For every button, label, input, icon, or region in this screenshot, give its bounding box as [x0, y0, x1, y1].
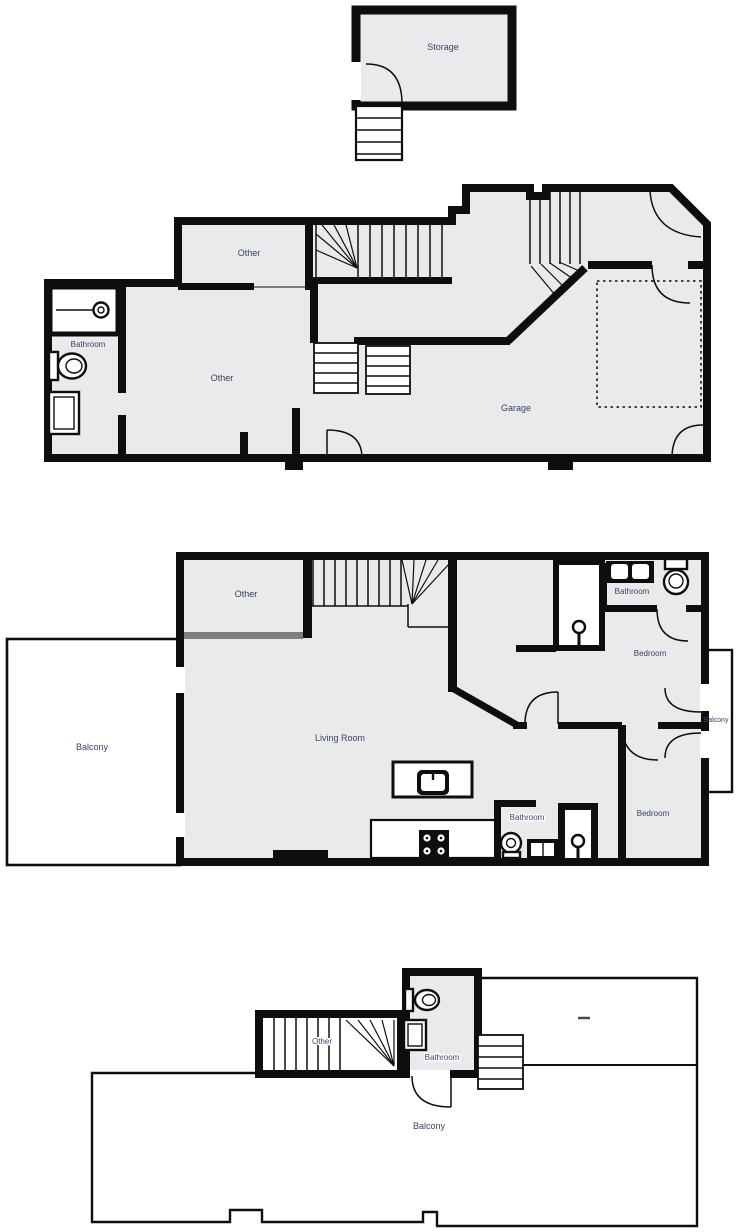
threshold-tab: [548, 454, 573, 470]
floor-plan-drawing: Storage Bathroom Other: [0, 0, 736, 1232]
double-vanity-icon: [606, 561, 654, 583]
hall-wall: [558, 722, 622, 729]
garage-level-outline: [48, 188, 707, 458]
bathroom-wall: [494, 800, 536, 807]
bedroom-top-label: Bedroom: [634, 649, 667, 658]
other-room-wall: [178, 283, 254, 290]
other-room-wall: [303, 556, 312, 638]
vanity-icon: [49, 392, 79, 434]
stair-wall: [448, 556, 457, 692]
terrace-small-stairs: [478, 1035, 523, 1089]
storage-door-opening: [350, 62, 361, 100]
bathroom-top-label: Bathroom: [615, 587, 650, 596]
other-big-label: Other: [211, 373, 234, 383]
bathroom-wall: [494, 800, 501, 862]
balcony-door-opening: [175, 667, 185, 693]
other-label: Other: [235, 589, 258, 599]
vanity-icon: [404, 1020, 426, 1050]
storage-room: [356, 10, 512, 106]
bedroom-bottom-label: Bedroom: [637, 809, 670, 818]
stove-icon: [419, 830, 449, 858]
storage-label: Storage: [427, 42, 459, 52]
storage-stairs: [356, 106, 402, 160]
living-room-label: Living Room: [315, 733, 365, 743]
balcony-left-label: Balcony: [76, 742, 109, 752]
balcony-right-label: Balcony: [704, 717, 729, 724]
balcony-door-opening: [700, 731, 710, 758]
floor-storage: Storage: [350, 10, 512, 160]
toilet-icon: [405, 989, 439, 1011]
terrace-bathroom-label: Bathroom: [425, 1053, 460, 1062]
other-small-label: Other: [238, 248, 261, 258]
floor-plan-page: Storage Bathroom Other: [0, 0, 736, 1232]
balcony-door-opening: [175, 813, 185, 837]
floor-garage-level: Bathroom Other: [48, 188, 707, 470]
corridor-wall: [240, 432, 248, 458]
hall-wall: [354, 337, 510, 345]
bathroom-label: Bathroom: [71, 340, 106, 349]
toilet-icon: [501, 833, 521, 858]
hall-wall: [516, 645, 556, 652]
floor-living-level: Other: [7, 556, 732, 865]
entry-wall: [588, 261, 652, 269]
balcony-left: [7, 639, 180, 865]
terrace-balcony-label: Balcony: [413, 1121, 446, 1131]
toilet-icon: [664, 559, 688, 594]
laundry-wall: [558, 803, 565, 862]
toilet-icon: [49, 352, 86, 380]
wall-pillar: [273, 850, 328, 862]
bathroom-bottom-label: Bathroom: [510, 813, 545, 822]
corridor-wall: [292, 408, 300, 458]
vanity-icon: [527, 839, 558, 860]
entry-wall: [688, 261, 707, 269]
bathroom-wall: [118, 415, 126, 458]
hall-wall: [310, 279, 318, 343]
balcony-door-opening: [700, 684, 710, 711]
stair-wall: [312, 277, 452, 284]
bathroom-wall: [600, 605, 657, 612]
bathroom-wall: [600, 563, 607, 612]
garage-label: Garage: [501, 403, 531, 413]
laundry-wall: [591, 803, 598, 862]
bathroom-door-opening: [410, 1070, 450, 1079]
kitchen-island: [393, 762, 472, 797]
other-room-gray-wall: [184, 632, 303, 639]
bathroom-wall: [686, 605, 705, 612]
terrace-other-label: Other: [312, 1037, 332, 1046]
bedroom-wall: [618, 725, 626, 862]
bathroom-wall: [118, 283, 126, 393]
hall-wall: [658, 722, 705, 729]
floor-terrace-level: Other Bathroom Balcony: [92, 972, 697, 1226]
living-level-outline: [180, 556, 705, 862]
threshold-tab: [285, 454, 303, 470]
